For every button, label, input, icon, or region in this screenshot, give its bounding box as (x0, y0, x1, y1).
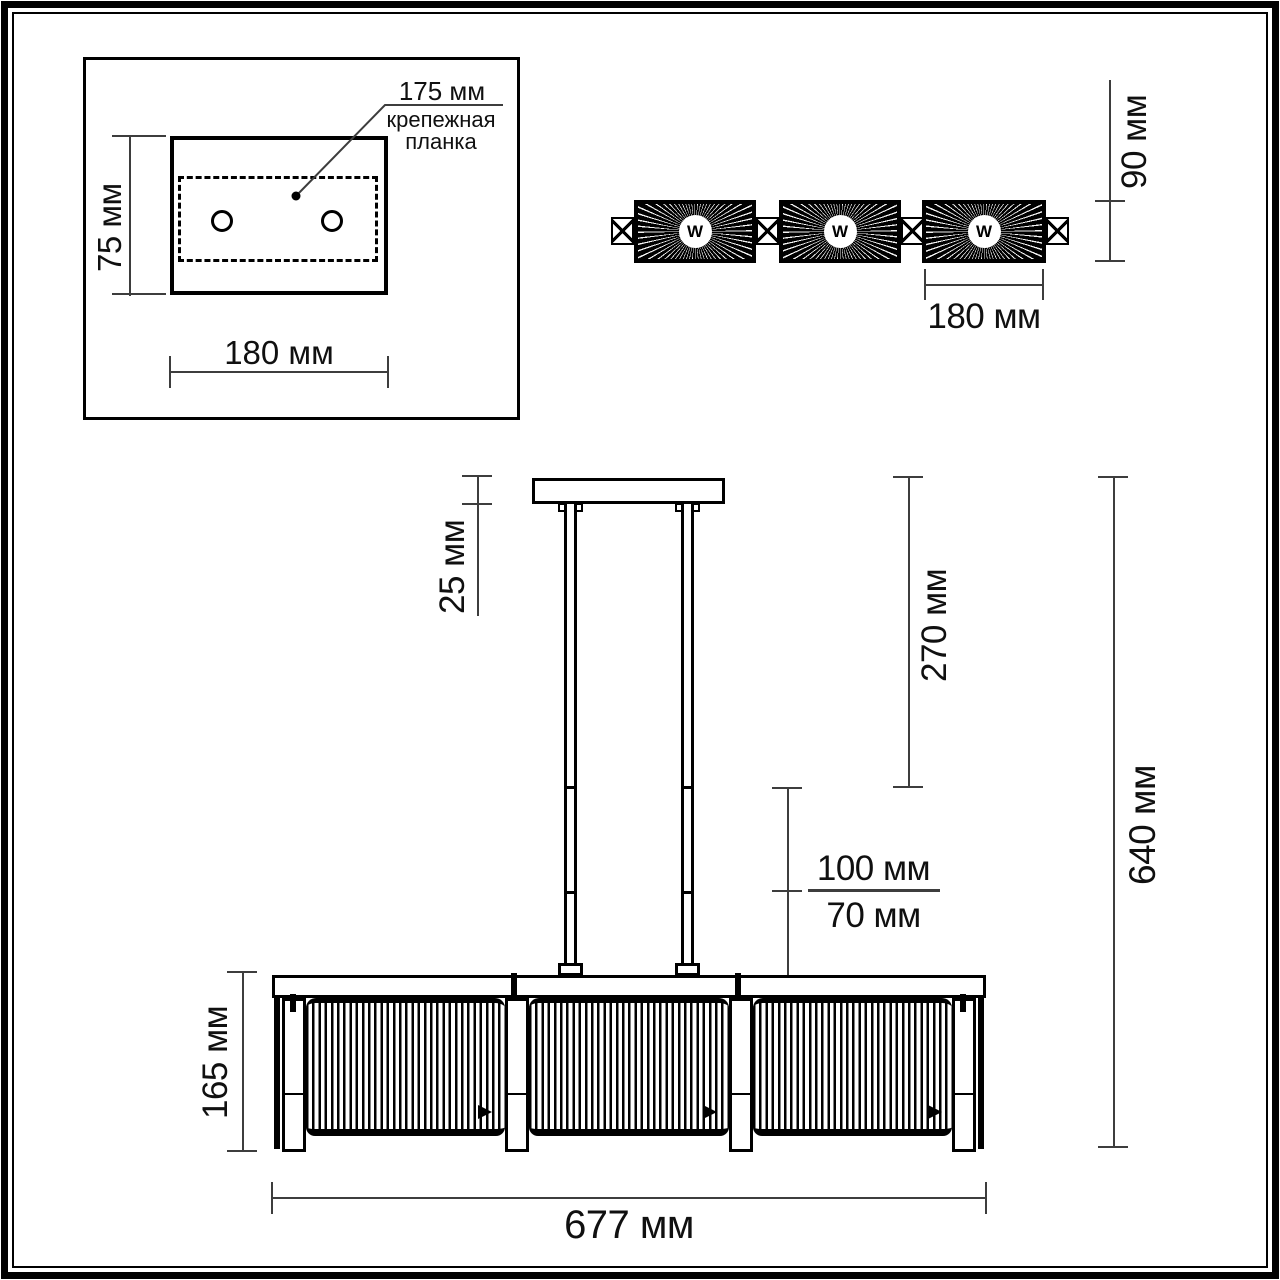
rod-end-dart-1 (478, 1105, 492, 1119)
overall-width-dim-line (272, 1197, 986, 1199)
post-3 (729, 998, 753, 1152)
post-1 (282, 998, 306, 1152)
rod-coupling-left-lower (564, 891, 577, 894)
shade-front-1 (306, 998, 505, 1136)
post-3-split (732, 1093, 750, 1095)
rod-coupling-right-lower (681, 891, 694, 894)
canopy-tick-bottom (462, 503, 492, 505)
bracket-caption-line1: крепежная (376, 109, 506, 131)
canopy-label: 25 мм (434, 512, 472, 622)
suspension-dim-line (787, 788, 789, 977)
rod-dim-line (908, 477, 910, 788)
side-plate-left (274, 997, 280, 1149)
fixture-body-bar (272, 975, 986, 998)
end-cap-left (611, 217, 634, 245)
shade-front-height-tick-top (227, 971, 257, 973)
shade-width-tick-left (924, 269, 926, 300)
shade-top-3: W (922, 200, 1046, 263)
ceiling-canopy (532, 478, 725, 504)
lamp-symbol-1: W (687, 222, 703, 242)
pitch-dimension-label: 175 мм (382, 76, 502, 107)
plate-height-tick-bottom (112, 293, 166, 295)
shade-height-label: 90 мм (1116, 84, 1154, 200)
suspension-tick-mid (772, 890, 802, 892)
overall-height-tick-top (1098, 476, 1128, 478)
suspension-upper-label: 100 мм (796, 849, 951, 889)
connector-1 (756, 217, 779, 245)
post-2 (505, 998, 529, 1152)
rod-length-label: 270 мм (915, 550, 955, 700)
plate-width-label: 180 мм (170, 334, 388, 372)
shade-front-height-tick-bottom (227, 1150, 257, 1152)
shade-front-2 (529, 998, 729, 1136)
lamp-socket-2: W (824, 215, 857, 248)
shade-front-height-label: 165 мм (196, 990, 236, 1135)
rod-coupling-left-upper (564, 786, 577, 789)
canopy-dim-line (477, 476, 479, 616)
side-plate-right (978, 997, 984, 1149)
suspension-rod-right (681, 504, 694, 975)
shade-width-dim-line (925, 284, 1043, 286)
post-4-split (955, 1093, 973, 1095)
plate-height-dim-line (129, 136, 131, 296)
end-cap-right (1046, 217, 1069, 245)
overall-height-tick-bottom (1098, 1146, 1128, 1148)
rod-coupling-right-upper (681, 786, 694, 789)
overall-height-dim-line (1113, 477, 1115, 1148)
post-4 (952, 998, 976, 1152)
canopy-tick-top (462, 475, 492, 477)
bracket-caption-line2: планка (376, 131, 506, 153)
lamp-symbol-2: W (832, 222, 848, 242)
lamp-socket-3: W (968, 215, 1001, 248)
suspension-fraction-bar (808, 889, 940, 892)
shade-height-tick-bottom (1095, 260, 1125, 262)
plate-height-tick-top (112, 135, 166, 137)
lamp-symbol-3: W (976, 222, 992, 242)
rod-end-dart-2 (703, 1105, 717, 1119)
shade-height-tick-top (1095, 200, 1125, 202)
shade-width-label: 180 мм (894, 297, 1074, 337)
post-2-split (508, 1093, 526, 1095)
technical-drawing-page: 175 мм крепежная планка 75 мм 180 мм W W (0, 0, 1280, 1280)
overall-width-label: 677 мм (272, 1203, 986, 1248)
post-1-split (285, 1093, 303, 1095)
suspension-lower-label: 70 мм (796, 896, 951, 936)
rod-tick-top (893, 476, 923, 478)
plate-height-label: 75 мм (92, 166, 128, 290)
post-hook-1 (290, 994, 296, 1012)
overall-height-label: 640 мм (1122, 733, 1164, 918)
mounting-plate-panel: 175 мм крепежная планка 75 мм 180 мм (83, 57, 520, 420)
shade-top-2: W (779, 200, 901, 263)
lamp-socket-1: W (679, 215, 712, 248)
post-pin-3 (735, 973, 741, 1001)
connector-2 (901, 217, 924, 245)
post-hook-4 (960, 994, 966, 1012)
shade-front-3 (753, 998, 952, 1136)
post-pin-2 (511, 973, 517, 1001)
shade-height-dim-line (1109, 80, 1111, 262)
rod-end-dart-3 (928, 1105, 942, 1119)
suspension-tick-top (772, 787, 802, 789)
shade-width-tick-right (1042, 269, 1044, 300)
shade-front-height-dim-line (242, 972, 244, 1152)
rod-tick-bottom (893, 786, 923, 788)
suspension-rod-left (564, 504, 577, 975)
shade-top-1: W (634, 200, 756, 263)
